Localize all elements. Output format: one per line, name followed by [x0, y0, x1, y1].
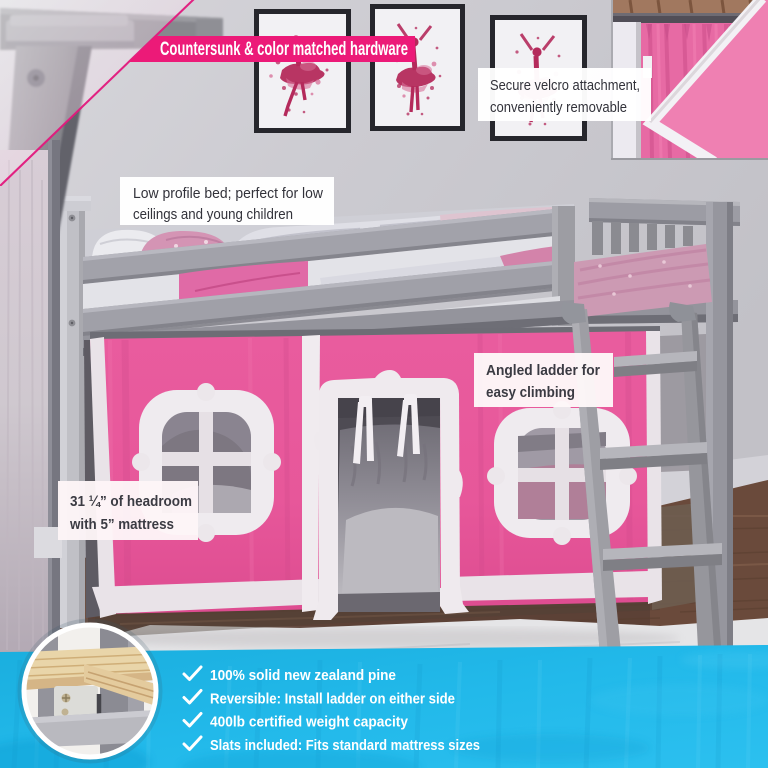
svg-text:100% solid new zealand pine: 100% solid new zealand pine [210, 667, 396, 684]
svg-text:with 5” mattress: with 5” mattress [69, 516, 174, 533]
svg-text:conveniently removable: conveniently removable [490, 99, 627, 116]
svg-text:Reversible: Install ladder on: Reversible: Install ladder on either sid… [210, 691, 455, 708]
svg-text:ceilings and young children: ceilings and young children [133, 206, 293, 223]
svg-text:Angled ladder for: Angled ladder for [486, 362, 600, 379]
svg-text:Slats included: Fits standard: Slats included: Fits standard mattress s… [210, 737, 480, 754]
svg-text:Low profile bed; perfect for l: Low profile bed; perfect for low [133, 185, 323, 202]
svg-text:easy climbing: easy climbing [486, 384, 575, 401]
svg-text:Countersunk & color matched ha: Countersunk & color matched hardware [160, 39, 408, 60]
svg-text:400lb certified weight capacit: 400lb certified weight capacity [210, 714, 409, 731]
svg-text:31 ¼” of headroom: 31 ¼” of headroom [70, 493, 192, 510]
svg-text:Secure velcro attachment,: Secure velcro attachment, [490, 77, 640, 94]
